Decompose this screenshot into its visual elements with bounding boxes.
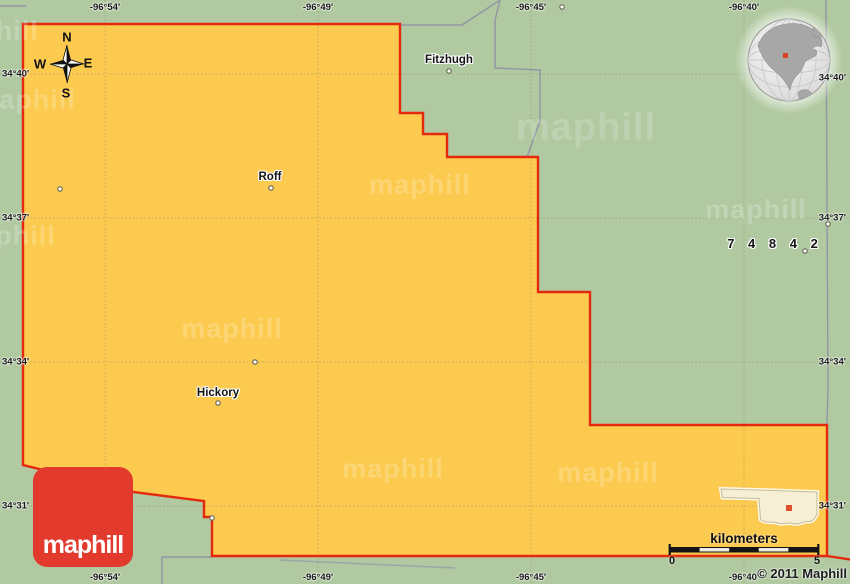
lat-label-right-2: 34°37': [819, 213, 846, 224]
town-label-roff: Roff: [259, 171, 282, 183]
lon-label-top-2: -96°49': [303, 2, 333, 13]
lon-label-bottom-2: -96°49': [303, 572, 333, 583]
town-marker: [269, 186, 273, 190]
compass-west-label: W: [34, 57, 46, 72]
compass-east-label: E: [84, 56, 93, 71]
county-area: [23, 24, 827, 556]
town-marker: [210, 516, 214, 520]
lat-label-left-3: 34°34': [2, 357, 29, 368]
lat-label-right-1: 34°40': [819, 73, 846, 84]
town-label-fitzhugh: Fitzhugh: [425, 54, 473, 66]
town-marker: [58, 187, 62, 191]
copyright-notice: © 2011 Maphill: [757, 566, 847, 581]
lon-label-bottom-1: -96°54': [90, 572, 120, 583]
globe-location-marker: [783, 53, 788, 58]
compass-north-label: N: [62, 30, 71, 45]
lon-label-top-1: -96°54': [90, 2, 120, 13]
town-label-hickory: Hickory: [197, 387, 239, 399]
compass-south-label: S: [62, 86, 71, 101]
lat-label-left-2: 34°37': [2, 213, 29, 224]
lat-label-left-1: 34°40': [2, 69, 29, 80]
lat-label-right-3: 34°34': [819, 357, 846, 368]
maphill-logo[interactable]: maphill: [33, 467, 133, 567]
lon-label-top-3: -96°45': [516, 2, 546, 13]
lon-label-bottom-3: -96°45': [516, 572, 546, 583]
scale-start-label: 0: [669, 555, 675, 567]
scale-unit-label: kilometers: [710, 531, 778, 546]
town-marker: [560, 5, 564, 9]
lat-label-left-4: 34°31': [2, 501, 29, 512]
lat-label-right-4: 34°31': [819, 501, 846, 512]
town-marker: [216, 401, 220, 405]
zip-code-label: 7 4 8 4 2: [727, 236, 823, 251]
inset-location-marker: [786, 505, 792, 511]
town-marker: [447, 69, 451, 73]
town-marker: [253, 360, 257, 364]
maphill-logo-text: maphill: [33, 531, 133, 560]
globe-locator: [735, 6, 843, 114]
map-canvas: maphill maphill maphill maphill maphill …: [0, 0, 850, 584]
lon-label-top-4: -96°40': [729, 2, 759, 13]
lon-label-bottom-4: -96°40': [729, 572, 759, 583]
